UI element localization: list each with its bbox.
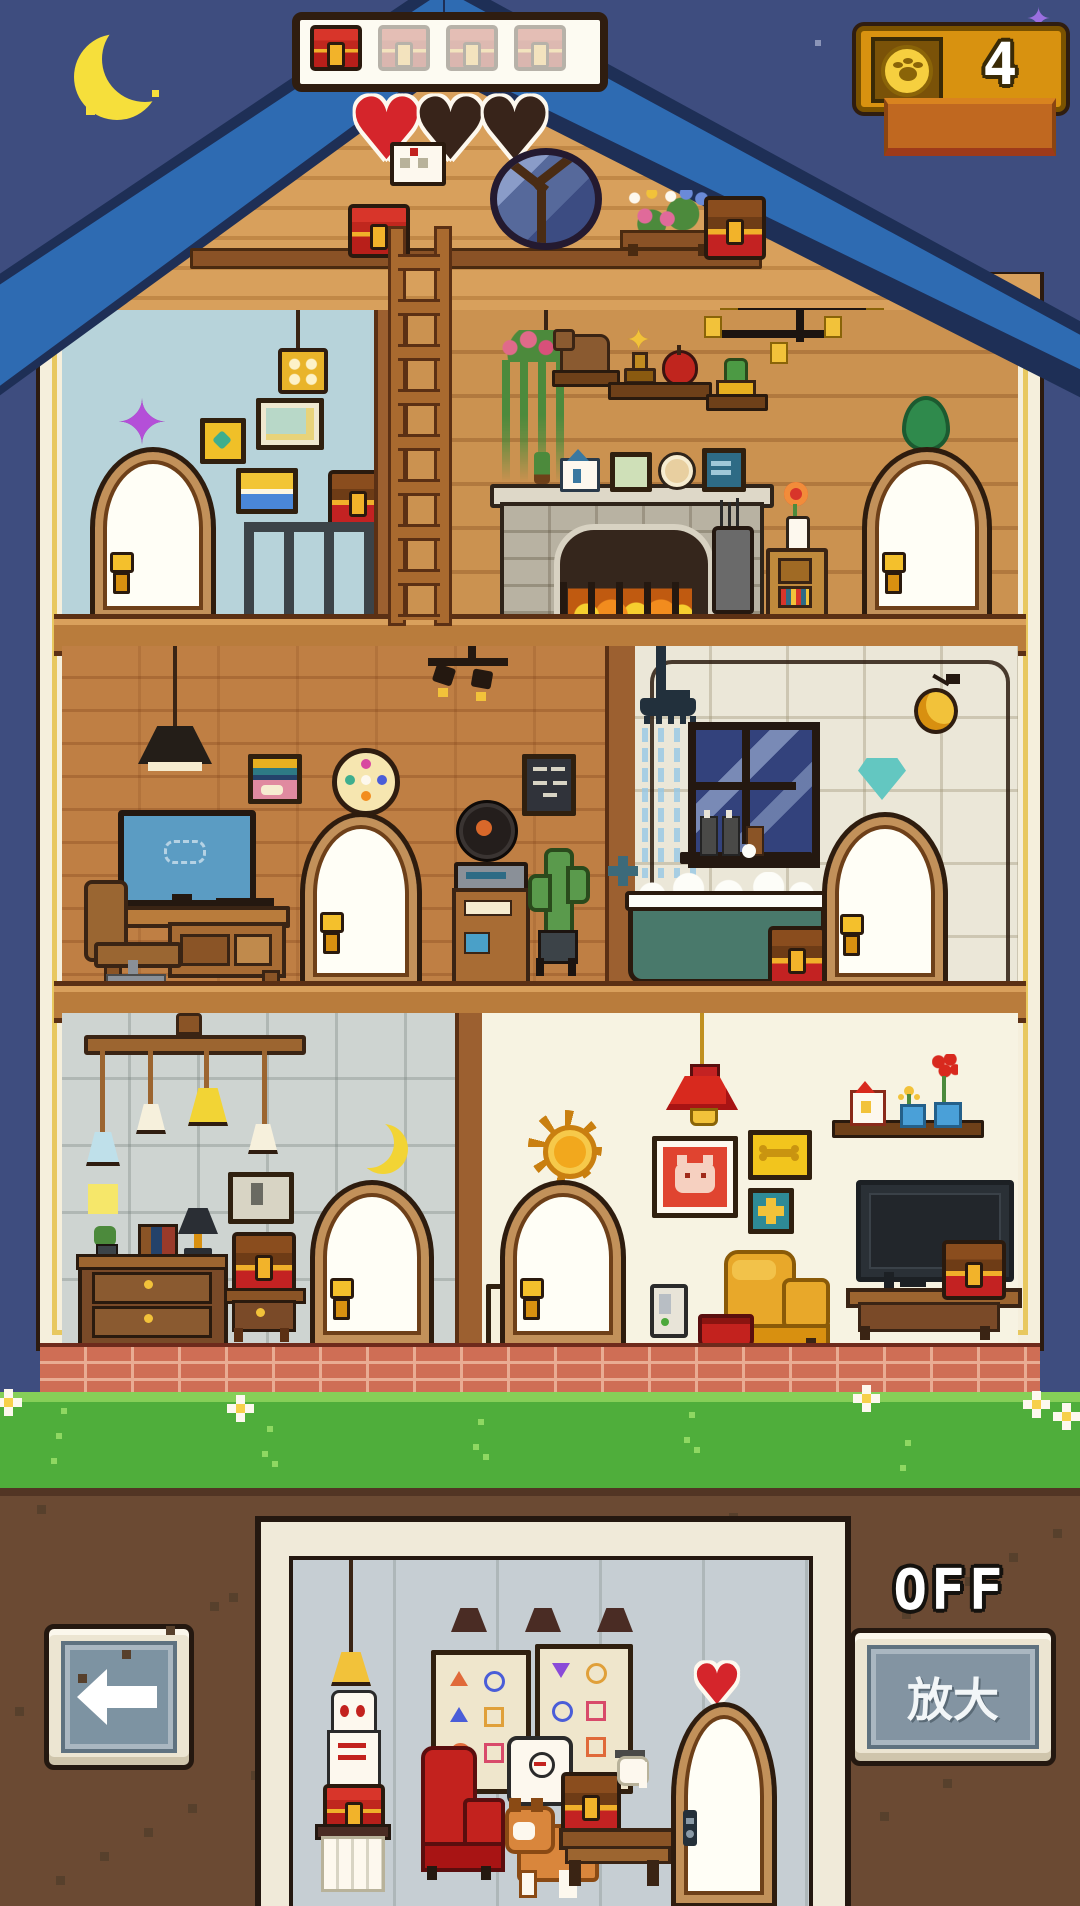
moon-sparkle (152, 90, 159, 97)
ground-speckle (15, 1707, 24, 1716)
door-bedroom[interactable] (310, 1180, 434, 1348)
flower-vase (778, 482, 814, 548)
sticky-note (88, 1184, 118, 1214)
stair-railing (244, 522, 386, 628)
map-art (266, 408, 314, 440)
game-screen: ✦ ✦ ✦ (0, 0, 1080, 1906)
gem-picture (200, 418, 246, 464)
ground-speckle (61, 1408, 67, 1414)
treasure-chest-icon (378, 25, 430, 71)
pendant-cord (173, 646, 177, 730)
house-figurine-red (850, 1090, 886, 1126)
chest-slot (374, 23, 434, 71)
ground-speckle (478, 1419, 484, 1425)
record-cabinet (452, 888, 530, 988)
treasure-chest-icon[interactable] (704, 196, 766, 260)
rosette-decal (332, 748, 400, 816)
vinyl-record (456, 800, 518, 862)
cactus-plant (528, 848, 584, 982)
zoom-button[interactable]: 放大 (850, 1628, 1056, 1766)
power-status-label: OFF (845, 1556, 1055, 1626)
treasure-chest-icon[interactable] (561, 1772, 621, 1836)
fireplace-opening (554, 524, 714, 616)
grass-flower (1062, 1412, 1071, 1421)
mini-ceiling-lamp (451, 1608, 487, 1632)
trophy: ✦ (622, 326, 654, 380)
pendant-cord (296, 310, 300, 350)
grass-flower (4, 1398, 13, 1407)
zoom-button-label: 放大 (907, 1664, 999, 1730)
treasure-chest-icon[interactable] (232, 1232, 296, 1296)
back-button[interactable] (44, 1624, 194, 1770)
mini-armchair-red (421, 1746, 503, 1886)
foundation (40, 1343, 1040, 1397)
chest-slot (306, 23, 366, 71)
moon-sparkle (86, 106, 95, 115)
ground-speckle (880, 1812, 889, 1821)
door-attic-left[interactable] (90, 447, 216, 623)
mini-pendant-cord (349, 1560, 353, 1656)
chalkboard-picture (522, 754, 576, 816)
door-lock (328, 1278, 352, 1320)
ground-speckle (483, 1454, 489, 1460)
dresser (78, 1258, 228, 1350)
door-bathroom[interactable] (822, 812, 948, 990)
door-lock (838, 914, 862, 956)
wall-shelf (706, 394, 768, 411)
wall-shelf (608, 382, 712, 400)
track-lights (428, 646, 508, 704)
door-living[interactable] (500, 1180, 626, 1348)
house-figurine (560, 458, 600, 492)
door-lock (318, 912, 342, 954)
back-arrow-icon (61, 1641, 177, 1753)
round-window (490, 148, 602, 250)
mini-room: ♥ (289, 1556, 813, 1906)
mini-ceiling-lamp (525, 1608, 561, 1632)
paw-coin-frame (871, 37, 943, 103)
ground-speckle (144, 1828, 153, 1837)
ground-speckle (100, 1852, 109, 1861)
treasure-chest-icon (310, 25, 362, 71)
ground-speckle (267, 1426, 273, 1432)
shower-head (648, 646, 712, 726)
paw-coin-icon (881, 45, 933, 97)
door-lock (518, 1278, 542, 1320)
pendant-lamp-glow (148, 762, 202, 771)
mini-door[interactable] (671, 1702, 777, 1906)
side-table (224, 1288, 300, 1342)
ground-speckle (1053, 1529, 1062, 1538)
treasure-chest-icon[interactable] (768, 926, 826, 988)
mantel-blue-picture (702, 448, 746, 492)
remote (900, 1280, 926, 1287)
ground-speckle (229, 1593, 238, 1602)
side-cabinet (766, 548, 828, 622)
mini-bench (559, 1828, 675, 1898)
ground-speckle (210, 1602, 219, 1611)
ground-speckle (56, 1876, 65, 1885)
envelope-icon[interactable] (390, 142, 446, 186)
mini-door-handle (683, 1810, 697, 1846)
ground-speckle (56, 1433, 62, 1439)
ground-speckle (272, 1461, 278, 1467)
ground-speckle (900, 1465, 906, 1471)
plus-picture (748, 1188, 794, 1234)
mini-room-panel[interactable]: ♥ (255, 1516, 851, 1906)
ground-speckle (473, 1444, 479, 1450)
moon-decal (344, 1118, 394, 1168)
mantel-plate (658, 452, 696, 490)
ladder[interactable] (388, 226, 450, 620)
treasure-chest-icon (514, 25, 566, 71)
mini-ceiling-lamp (597, 1608, 633, 1632)
pendant-cord-gold (700, 1013, 704, 1071)
treasure-chest-icon[interactable] (942, 1240, 1006, 1300)
landscape-picture (228, 1172, 294, 1224)
gem-glyph (212, 430, 232, 450)
vase-red-flowers (928, 1054, 962, 1122)
faucet (608, 856, 644, 886)
treasure-chest-icon (446, 25, 498, 71)
door-attic-right[interactable] (862, 447, 992, 623)
grass-flower (236, 1404, 245, 1413)
apple (662, 350, 698, 386)
bone-picture (748, 1130, 812, 1180)
red-pendant-lamp (666, 1064, 738, 1122)
mantel-picture (610, 452, 652, 492)
coin-count: 4 (945, 29, 1055, 99)
ground-speckle (122, 1650, 131, 1659)
beach-picture (236, 468, 298, 514)
ground-speckle (689, 1412, 695, 1418)
table-lamp (176, 1208, 220, 1260)
office-chair (84, 880, 188, 986)
star-icon (815, 40, 821, 46)
vase-yellow-flower (896, 1086, 924, 1122)
lantern-lamp (278, 348, 328, 394)
ground-speckle (78, 1674, 87, 1683)
ground-speckle (51, 1458, 57, 1464)
moon-icon (102, 16, 188, 102)
treat-dispenser[interactable] (650, 1284, 688, 1338)
ground-speckle (166, 1626, 175, 1635)
ground-speckle (188, 1804, 197, 1813)
horse-figurine (560, 334, 610, 374)
fire-tools (712, 500, 750, 608)
fire-grate (560, 582, 696, 616)
chest-slot (510, 23, 570, 71)
map-picture (256, 398, 324, 450)
mini-gold-lamp (331, 1652, 371, 1686)
ground-speckle (943, 1779, 952, 1788)
ground-speckle (262, 1451, 268, 1457)
ground-speckle (905, 1440, 911, 1446)
wall-lamp (912, 670, 960, 732)
door-office[interactable] (300, 812, 422, 990)
stripe-picture (248, 754, 302, 804)
ground-speckle (684, 1437, 690, 1443)
chest-slot (442, 23, 502, 71)
cat-picture[interactable] (652, 1136, 738, 1218)
mini-doll[interactable] (311, 1690, 387, 1886)
mini-toilet-paper (615, 1750, 649, 1790)
tv-leg (884, 1272, 894, 1288)
bubble (742, 844, 756, 858)
ground-speckle (37, 1505, 46, 1514)
mantel-sprig (534, 452, 550, 484)
cloud-logo (164, 840, 206, 864)
ground-speckle (694, 1447, 700, 1453)
chimney (884, 98, 1056, 156)
grass-flower (862, 1394, 871, 1403)
door-lock (108, 552, 132, 594)
door-lock (880, 552, 904, 594)
grass (0, 1392, 1080, 1498)
grass-flower (1032, 1400, 1041, 1409)
sun-decal (528, 1110, 602, 1184)
